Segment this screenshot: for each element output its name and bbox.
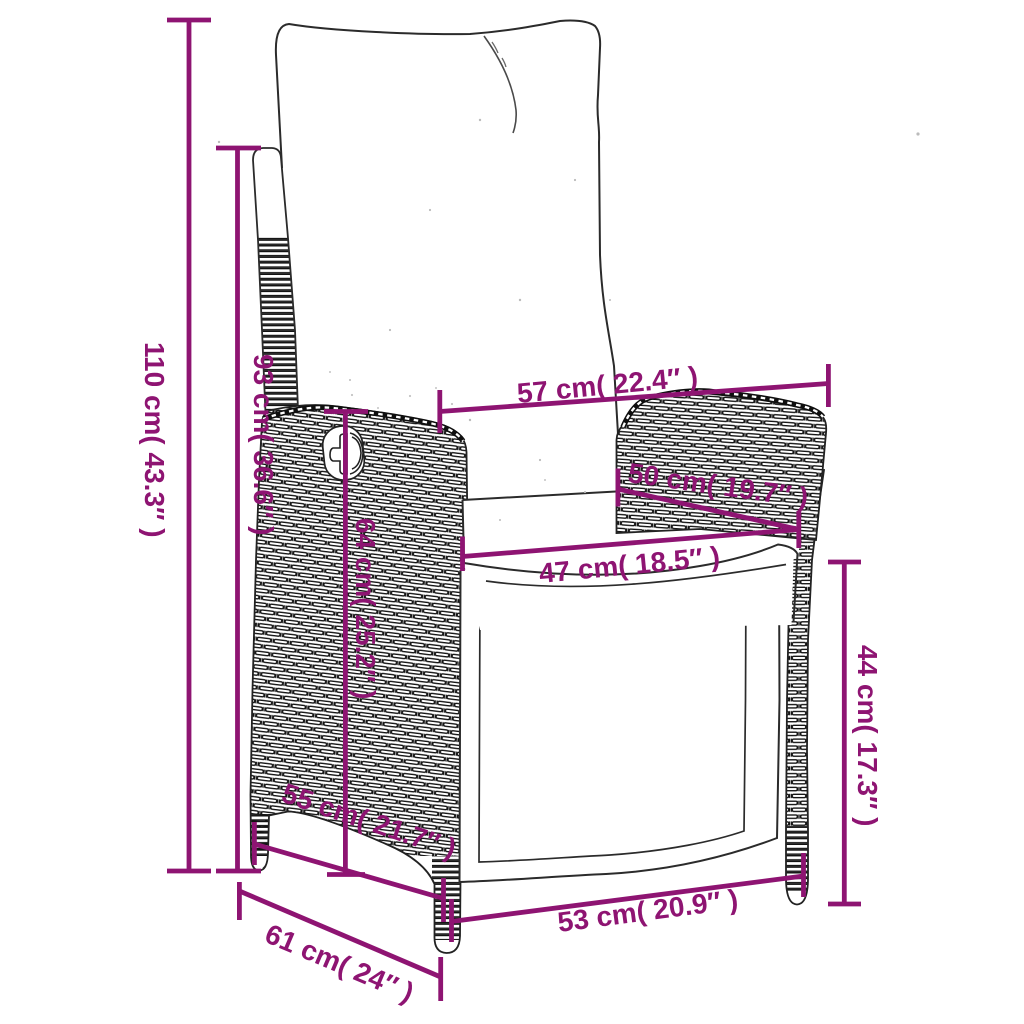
svg-text:110 cm( 43.3″ ): 110 cm( 43.3″ ): [139, 342, 170, 538]
svg-text:44 cm( 17.3″ ): 44 cm( 17.3″ ): [852, 645, 883, 827]
svg-text:93 cm( 36.6″ ): 93 cm( 36.6″ ): [248, 354, 279, 536]
svg-text:64 cm( 25.2″ ): 64 cm( 25.2″ ): [350, 518, 381, 700]
